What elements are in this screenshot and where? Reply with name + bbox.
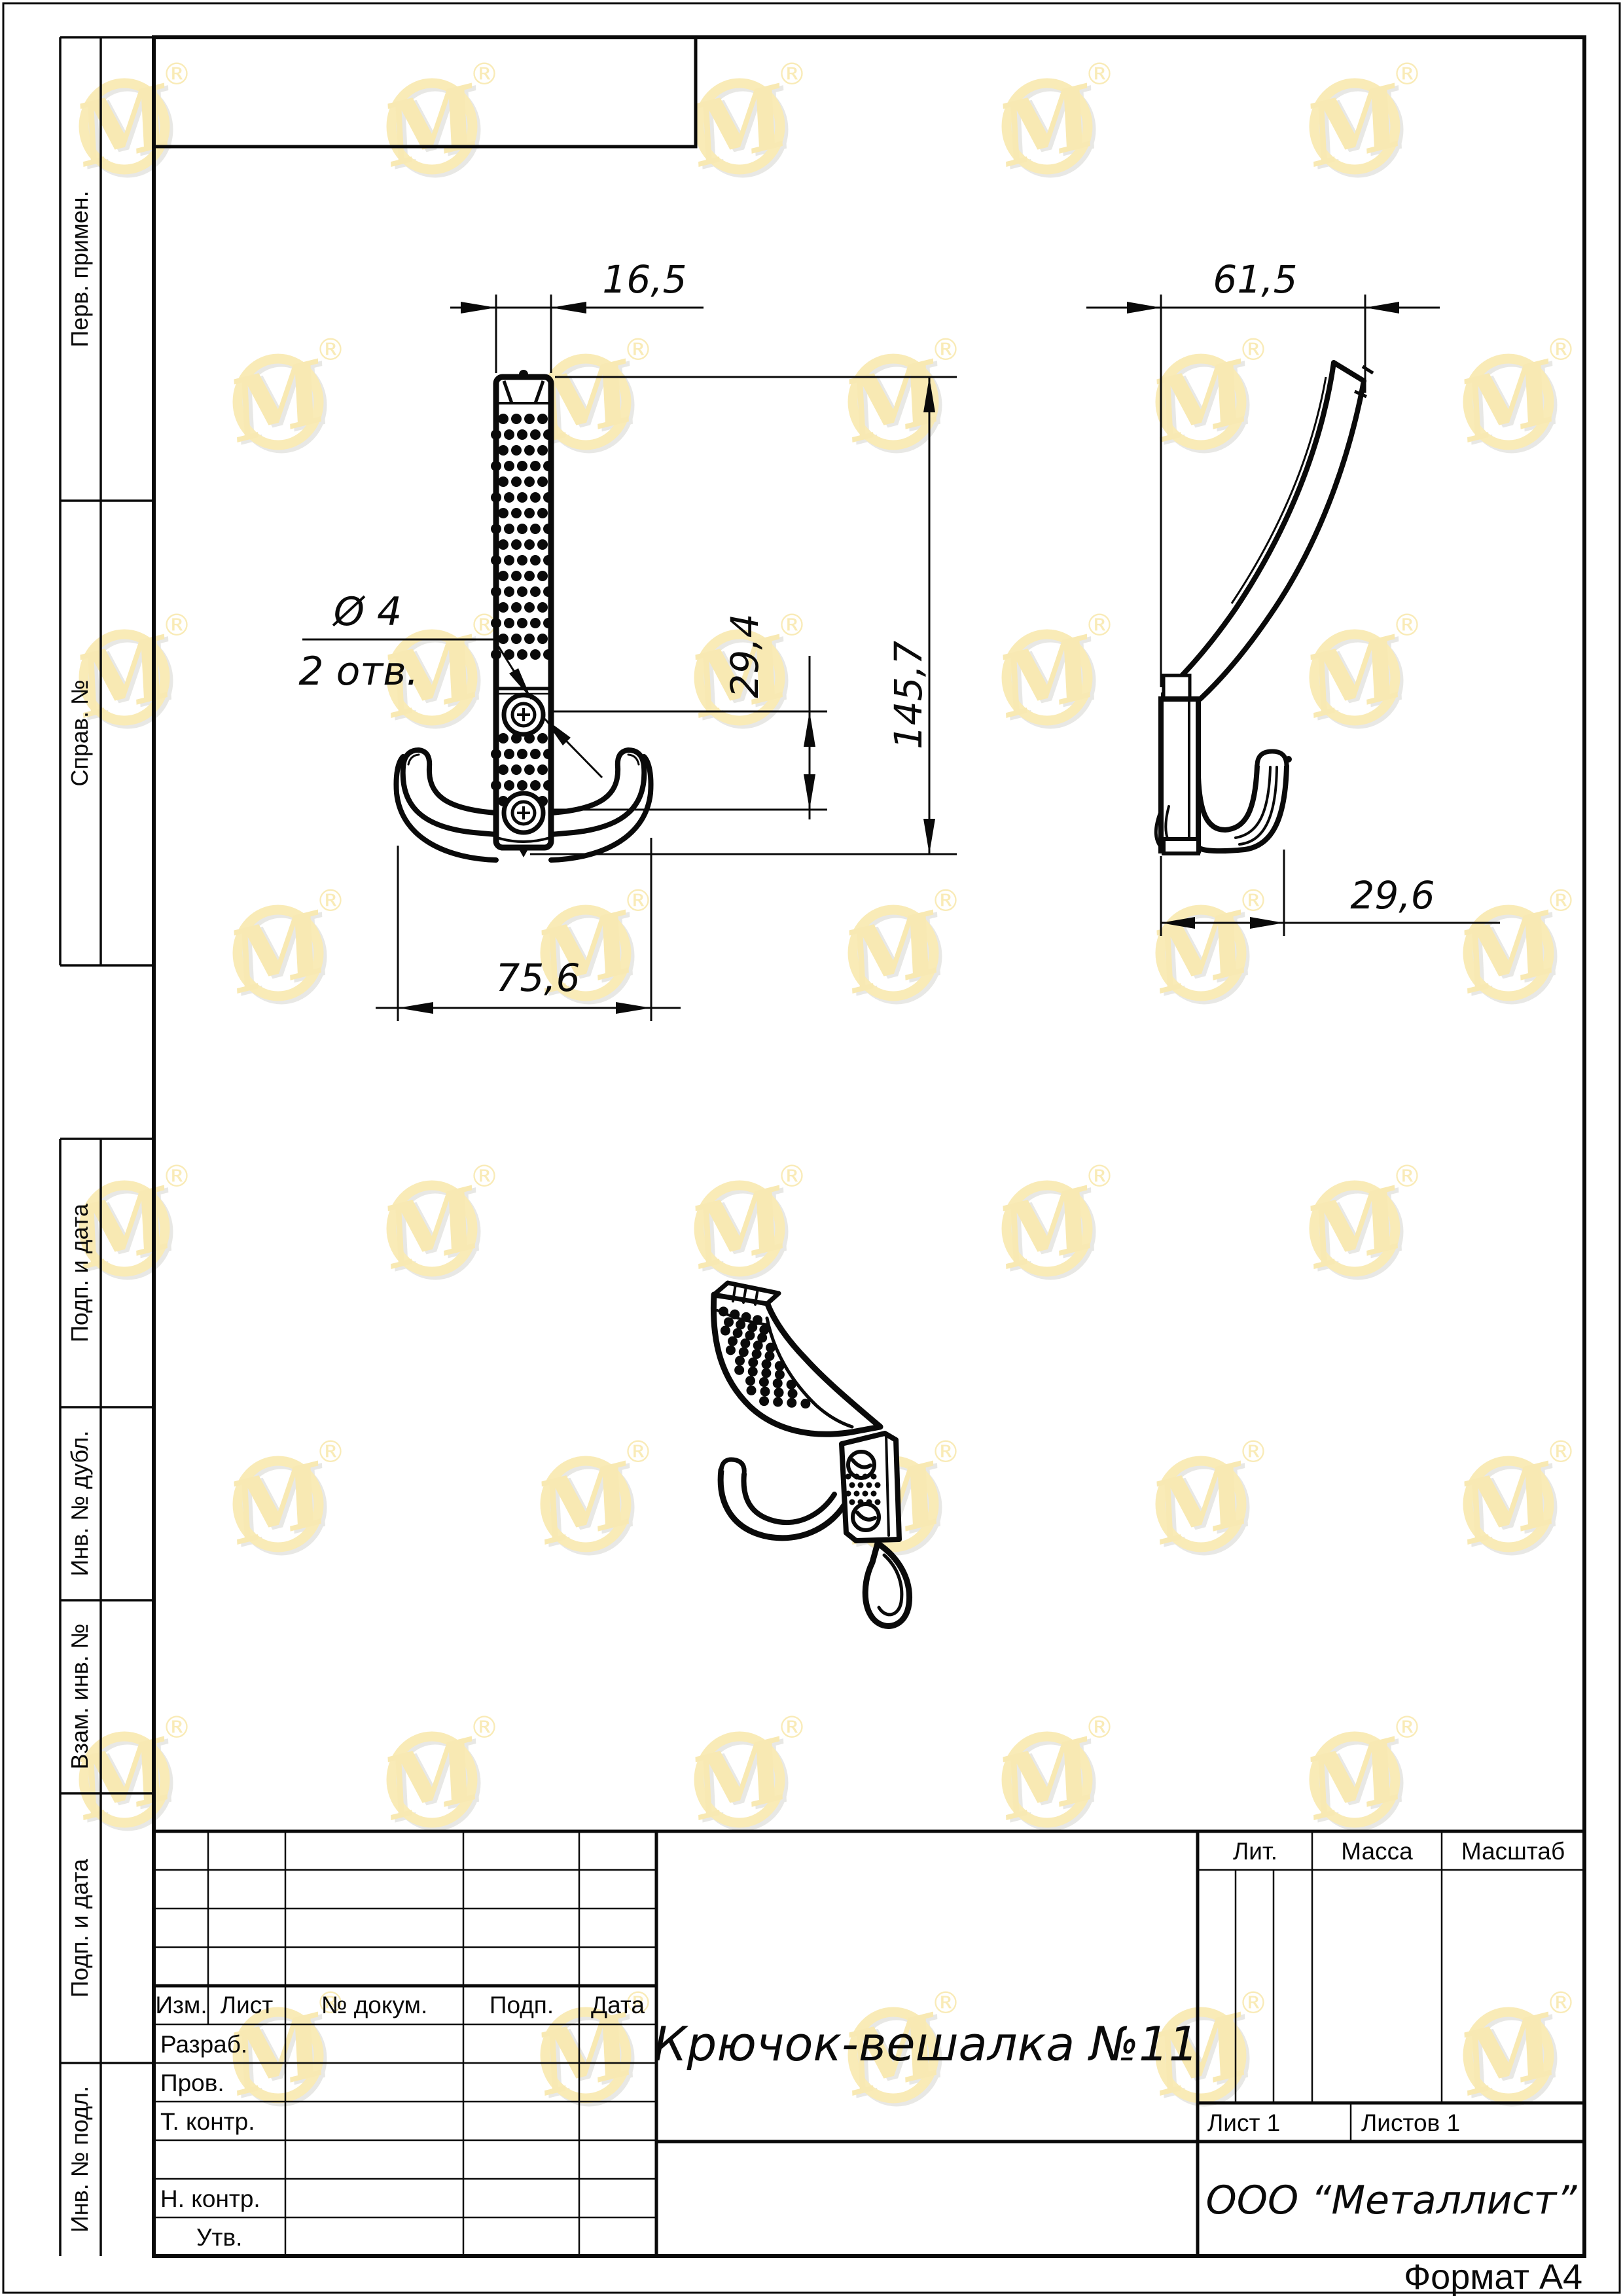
svg-text:®: ®: [931, 1434, 961, 1469]
dim-front-height: 145,7: [886, 641, 931, 749]
company-name: ООО “Металлист”: [1206, 2178, 1578, 2223]
svg-text:®: ®: [1546, 1985, 1576, 2020]
svg-text:®: ®: [162, 1710, 192, 1745]
svg-text:®: ®: [1546, 1434, 1576, 1469]
front-screw-hole-lower: [504, 793, 543, 833]
svg-text:®: ®: [1392, 1710, 1422, 1745]
svg-text:®: ®: [315, 883, 346, 918]
svg-text:®: ®: [162, 56, 192, 92]
svg-text:®: ®: [1084, 607, 1115, 643]
front-top-nub: [519, 370, 528, 379]
dim-side-hook-depth: 29,6: [1350, 873, 1435, 918]
margin-label-sprav-no: Справ. №: [66, 679, 93, 786]
row-razrab: Разраб.: [160, 2031, 247, 2058]
header-sign: Подп.: [490, 1992, 554, 2018]
svg-text:®: ®: [931, 1985, 961, 2020]
svg-text:®: ®: [1238, 1985, 1268, 2020]
dim-front-width-bottom: 75,6: [495, 956, 580, 1000]
svg-text:®: ®: [623, 1434, 653, 1469]
header-izm: Изм.: [155, 1992, 207, 2018]
dim-front-hole-offset: 29,4: [722, 613, 767, 698]
dim-front-hole-dia: Ø 4: [332, 589, 402, 635]
margin-label-podp-data-1: Подп. и дата: [66, 1203, 93, 1342]
svg-text:®: ®: [162, 1158, 192, 1194]
svg-text:®: ®: [162, 607, 192, 643]
dim-side-depth: 61,5: [1213, 257, 1297, 302]
header-list: Лист: [221, 1992, 273, 2018]
row-n-kontr: Н. контр.: [160, 2185, 260, 2212]
svg-text:®: ®: [623, 332, 653, 367]
svg-text:®: ®: [1546, 332, 1576, 367]
svg-text:®: ®: [931, 332, 961, 367]
margin-label-inv-podl: Инв. № подл.: [66, 2086, 93, 2233]
sheet-value: Лист 1: [1207, 2109, 1280, 2136]
header-date: Дата: [591, 1992, 645, 2018]
svg-text:®: ®: [1546, 883, 1576, 918]
svg-text:®: ®: [469, 56, 499, 92]
row-t-kontr: Т. контр.: [160, 2108, 255, 2135]
sheets-value: Листов 1: [1361, 2109, 1460, 2136]
row-utv: Утв.: [196, 2224, 242, 2251]
row-prov: Пров.: [160, 2070, 224, 2096]
dim-front-width-top: 16,5: [602, 257, 687, 302]
svg-text:®: ®: [1392, 607, 1422, 643]
format-note: Формат А4: [1404, 2257, 1582, 2296]
svg-text:®: ®: [777, 56, 807, 92]
dim-front-hole-qty: 2 отв.: [298, 649, 418, 694]
svg-text:®: ®: [1084, 56, 1115, 92]
margin-label-podp-data-2: Подп. и дата: [66, 1858, 93, 1998]
front-screw-hole-upper: [504, 695, 543, 734]
side-plate-foot: [1164, 839, 1198, 853]
svg-text:®: ®: [1392, 1158, 1422, 1194]
svg-text:®: ®: [931, 883, 961, 918]
document-name: Крючок-вешалка №11: [653, 2017, 1198, 2072]
svg-text:®: ®: [1392, 56, 1422, 92]
side-neck-joint: [1164, 675, 1190, 699]
svg-text:®: ®: [469, 1158, 499, 1194]
svg-text:®: ®: [469, 1710, 499, 1745]
svg-text:®: ®: [777, 1158, 807, 1194]
margin-label-inv-dubl: Инв. № дубл.: [66, 1431, 93, 1577]
margin-label-vzam-inv: Взам. инв. №: [66, 1623, 93, 1769]
svg-text:®: ®: [777, 607, 807, 643]
drawing-sheet: MM®MM®MM®MM®MM®MM®MM®MM®MM®MM®MM®MM®MM®M…: [0, 0, 1623, 2296]
svg-text:®: ®: [1084, 1158, 1115, 1194]
lit-label: Лит.: [1233, 1838, 1277, 1865]
mass-label: Масса: [1341, 1838, 1413, 1865]
scale-label: Масштаб: [1461, 1838, 1565, 1865]
sheet-background: [0, 0, 1623, 2296]
svg-text:®: ®: [777, 1710, 807, 1745]
svg-text:®: ®: [315, 332, 346, 367]
svg-text:®: ®: [1084, 1710, 1115, 1745]
svg-text:®: ®: [1238, 332, 1268, 367]
header-doc-no: № докум.: [321, 1992, 428, 2018]
margin-label-perv-primen: Перв. примен.: [66, 190, 93, 347]
svg-text:®: ®: [1238, 883, 1268, 918]
svg-text:®: ®: [1238, 1434, 1268, 1469]
svg-text:®: ®: [623, 883, 653, 918]
svg-text:®: ®: [315, 1434, 346, 1469]
